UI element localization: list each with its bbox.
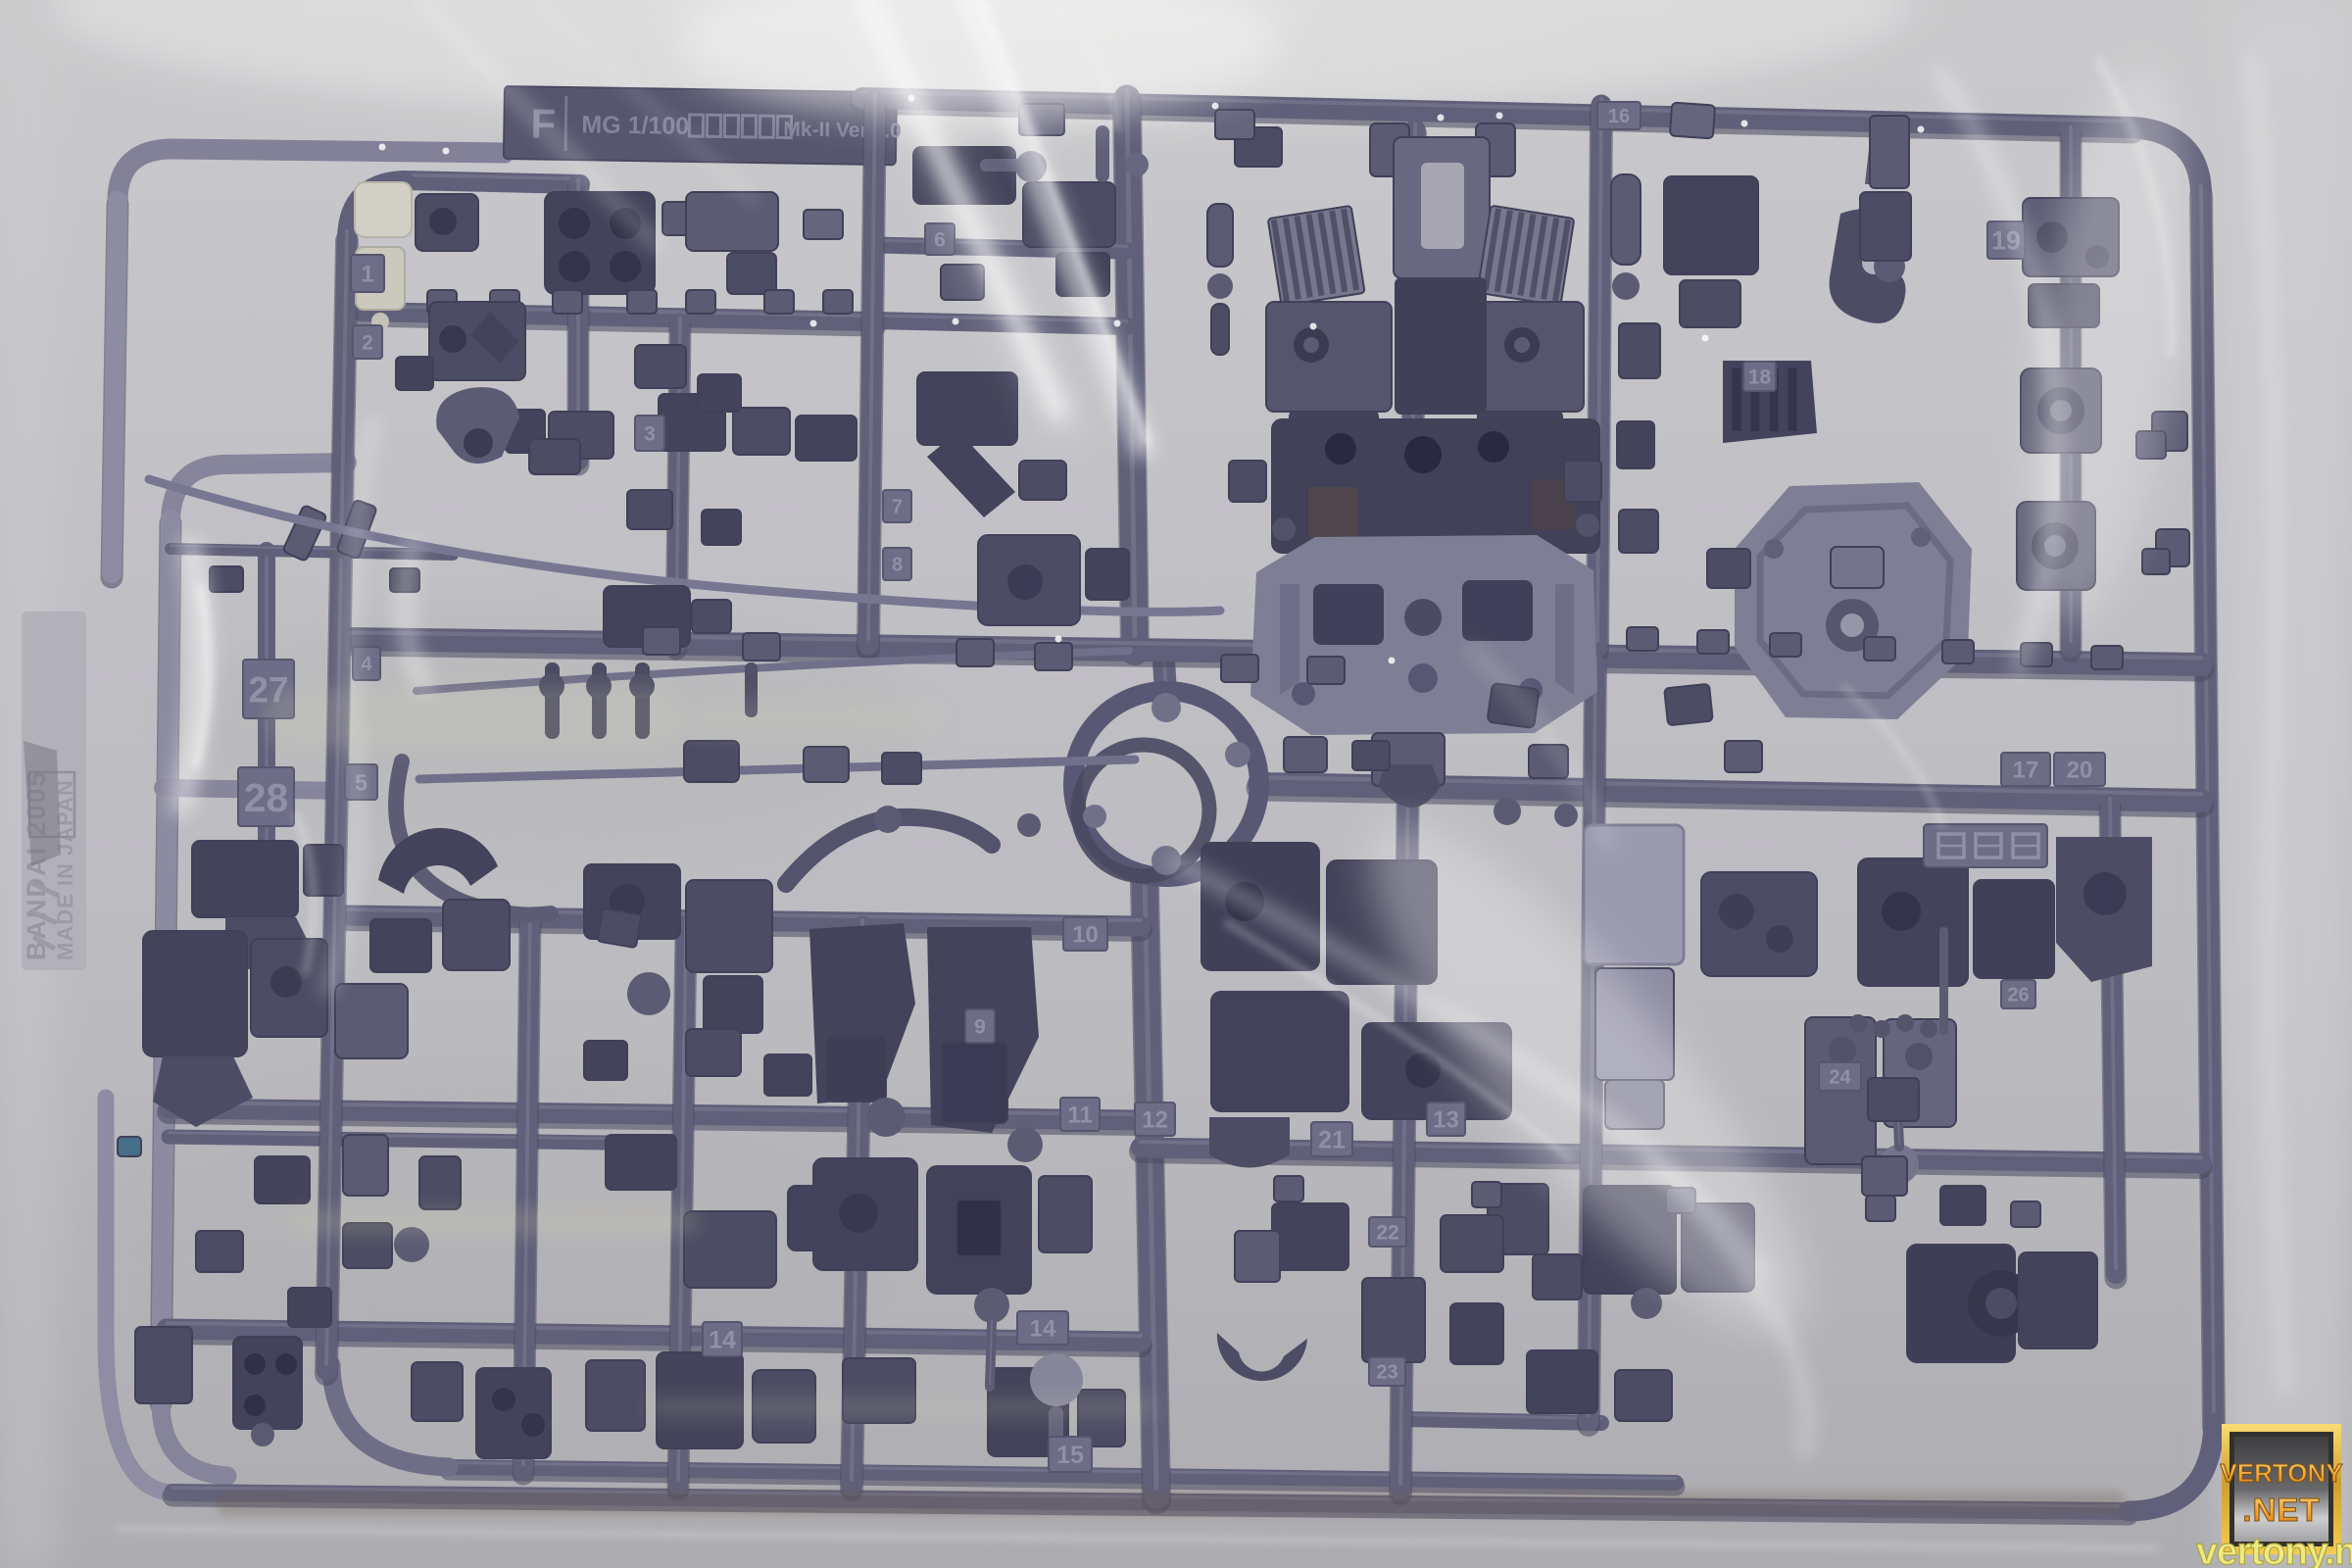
svg-text:VERTONY: VERTONY — [2220, 1458, 2342, 1488]
svg-text:.NET: .NET — [2242, 1492, 2320, 1528]
svg-text:vertony.net: vertony.net — [2196, 1531, 2352, 1568]
